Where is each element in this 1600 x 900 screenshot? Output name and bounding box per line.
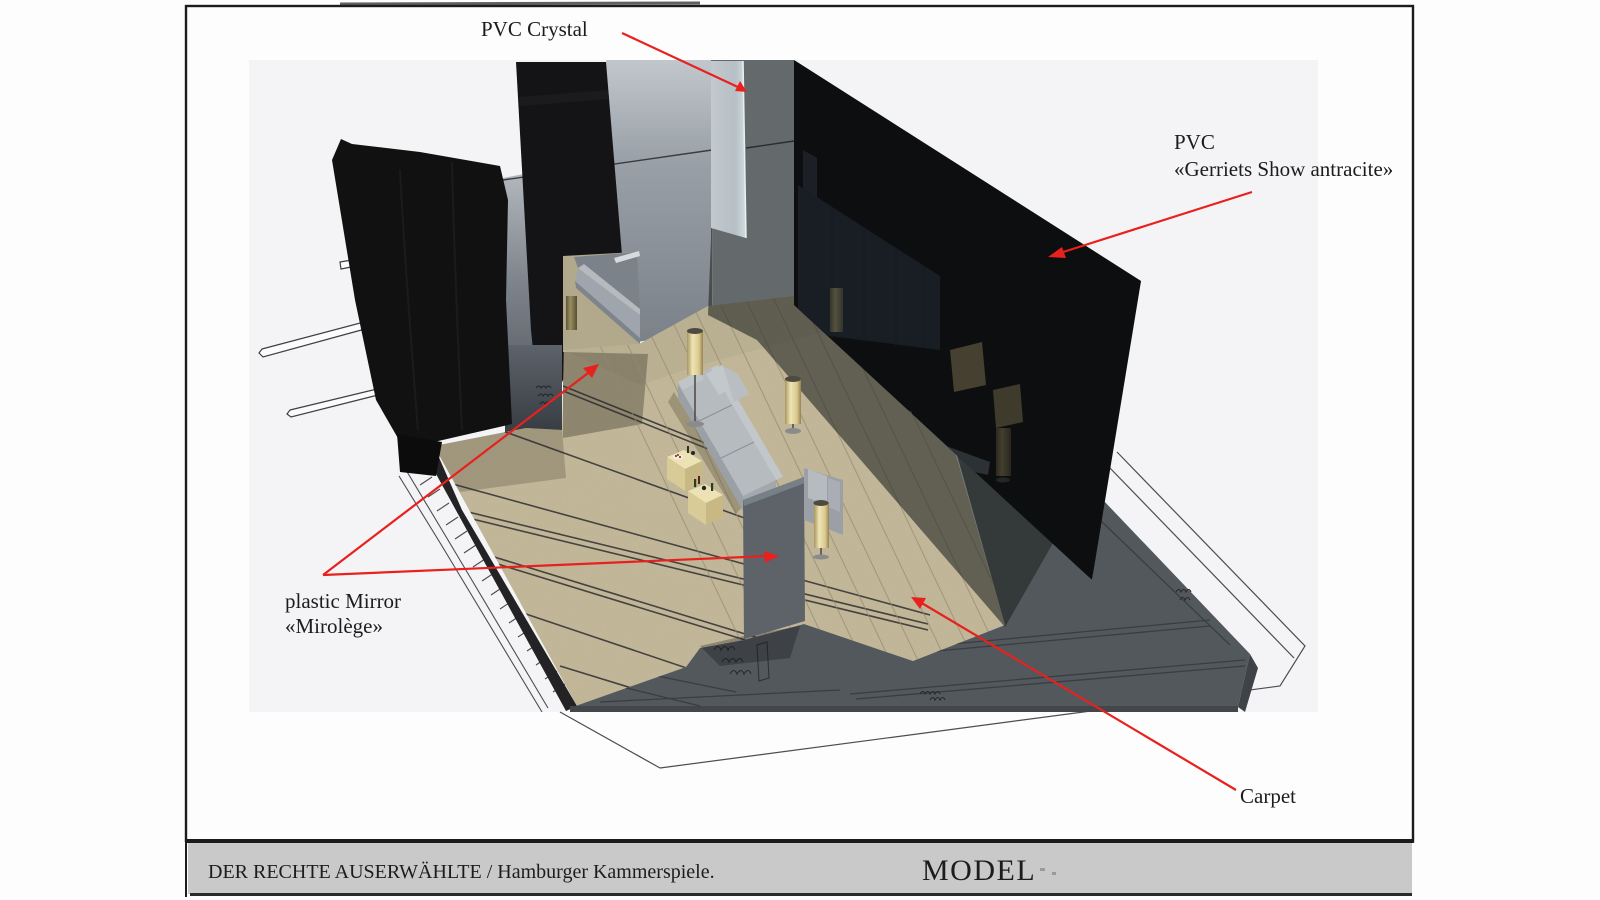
- svg-text:Carpet: Carpet: [1240, 784, 1296, 808]
- svg-text:PVC Crystal: PVC Crystal: [481, 17, 588, 41]
- svg-text:«Gerriets Show antracite»: «Gerriets Show antracite»: [1174, 157, 1393, 181]
- svg-text:«Mirolège»: «Mirolège»: [285, 614, 383, 638]
- svg-text:plastic Mirror: plastic Mirror: [285, 589, 401, 613]
- svg-text:MODEL: MODEL: [922, 854, 1036, 887]
- svg-text:DER RECHTE AUSERWÄHLTE / Hambu: DER RECHTE AUSERWÄHLTE / Hamburger Kamme…: [208, 860, 715, 883]
- svg-text:PVC: PVC: [1174, 130, 1215, 154]
